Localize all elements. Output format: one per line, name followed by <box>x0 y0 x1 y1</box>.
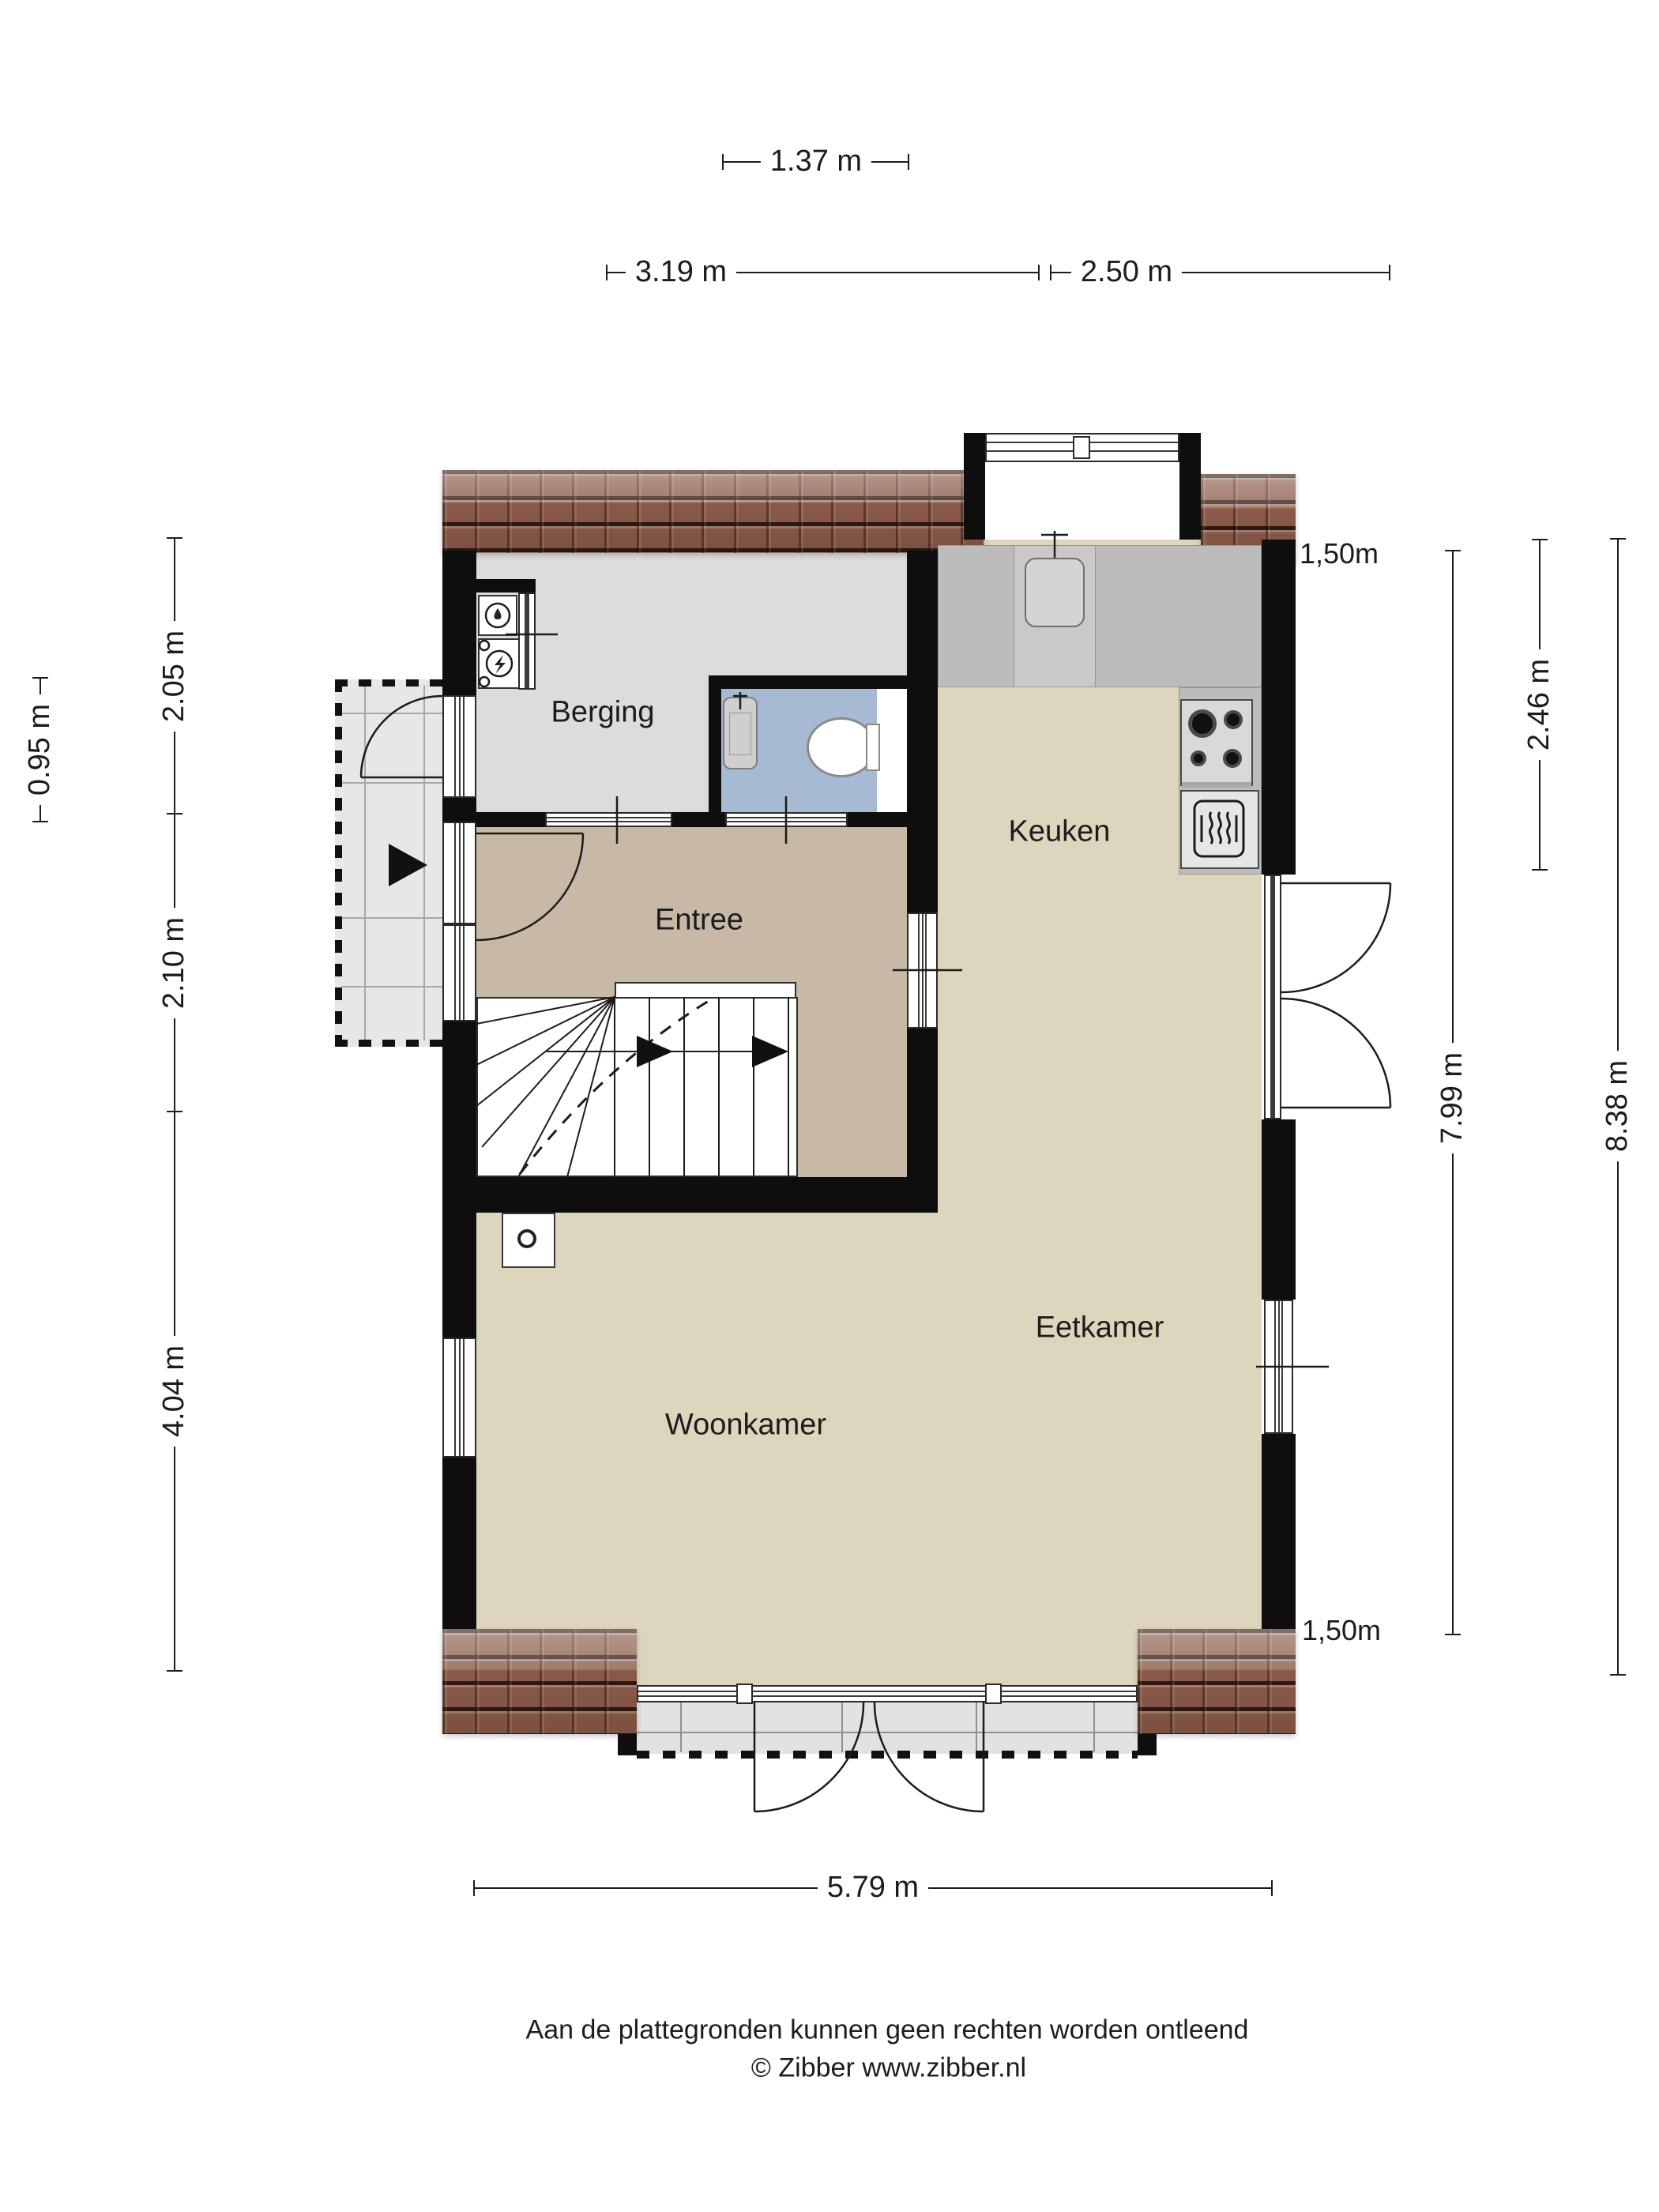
dim-label-right-inner: 7.99 m <box>1436 1043 1469 1153</box>
dim-label-left-bottom: 4.04 m <box>158 1336 191 1446</box>
oven <box>1180 790 1259 869</box>
front-door-sidelight <box>442 924 476 1021</box>
electricity-meter <box>478 638 522 689</box>
dim-tick <box>167 1670 182 1672</box>
porch-joint <box>341 986 442 987</box>
dim-tick <box>167 1111 182 1112</box>
dim-tick <box>167 537 182 539</box>
dim-tick <box>1050 265 1051 280</box>
wall-left <box>442 551 476 695</box>
french-door-arc <box>1281 999 1390 1108</box>
dim-label-left-middle: 2.10 m <box>158 908 191 1018</box>
dim-tick <box>722 154 724 170</box>
stove <box>1180 699 1253 786</box>
porch-joint <box>341 713 442 714</box>
room-label-keuken: Keuken <box>1009 815 1111 849</box>
roof-strip-bottom-right <box>1138 1629 1296 1734</box>
room-label-woonkamer: Woonkamer <box>665 1409 826 1443</box>
porch-dashed-border-left <box>335 679 342 1047</box>
dim-tick <box>1532 539 1548 540</box>
toilet-door <box>725 812 848 827</box>
dim-tick <box>1271 1880 1273 1896</box>
bay-post-right <box>1138 1734 1157 1755</box>
dormer-pillar-right <box>1179 433 1201 540</box>
bottom-front-mullion-left <box>736 1683 753 1704</box>
french-door-arc <box>1281 883 1390 992</box>
toilet-duct <box>877 689 907 812</box>
footer-disclaimer: Aan de plattegronden kunnen geen rechten… <box>526 2015 1249 2046</box>
stove-burner <box>1224 710 1243 729</box>
room-label-entree: Entree <box>655 904 743 938</box>
dim-tick <box>32 821 48 822</box>
stove-burner <box>1223 749 1242 768</box>
ceiling-height-label-bottom: 1,50m <box>1302 1614 1381 1647</box>
staircase-body <box>476 997 798 1177</box>
toilet-sink-basin <box>729 713 751 755</box>
floorplan-canvas: Berging Entree Keuken Eetkamer Woonkamer… <box>0 0 1659 2212</box>
footer-copyright: © Zibber www.zibber.nl <box>751 2053 1026 2084</box>
meter-cupboard-wall <box>476 579 536 592</box>
dim-label-bottom-width: 5.79 m <box>818 1872 928 1905</box>
dim-tick <box>606 265 608 280</box>
wall-toilet-left <box>709 689 721 812</box>
berging-exterior-door <box>442 695 476 798</box>
terrace-joint <box>637 1732 1138 1733</box>
staircase-landing <box>615 982 796 999</box>
dim-label-top-width: 1.37 m <box>761 145 871 179</box>
kitchen-sink <box>1025 558 1085 627</box>
bay-post-left <box>618 1734 637 1755</box>
dim-tick <box>1038 265 1040 280</box>
wall-berging-entree <box>476 812 545 827</box>
dormer-window-mullion <box>1073 436 1090 459</box>
dim-tick <box>1389 265 1390 280</box>
terrace-joint <box>976 1702 977 1752</box>
terrace-dotted-edge <box>637 1751 1138 1759</box>
water-meter <box>478 595 517 636</box>
kitchen-french-door-frame <box>1264 875 1281 1119</box>
wall-right <box>1262 1119 1296 1300</box>
room-label-berging: Berging <box>551 696 655 730</box>
stove-handle <box>1182 782 1251 788</box>
wall-berging-keuken <box>907 551 938 912</box>
ceiling-height-label-top: 1,50m <box>1300 537 1379 570</box>
dim-tick <box>1445 1634 1461 1635</box>
dormer-pillar-left <box>964 433 985 540</box>
dim-tick <box>32 677 48 679</box>
front-door <box>442 822 476 924</box>
dim-tick <box>1610 1674 1626 1676</box>
berging-entree-passage <box>545 812 672 827</box>
wall-right <box>1262 540 1296 875</box>
dim-label-right-kitchen: 2.46 m <box>1523 649 1556 760</box>
wood-stove-flue <box>517 1229 536 1248</box>
dim-label-right-outer: 8.38 m <box>1601 1051 1635 1161</box>
dim-tick <box>1610 538 1626 540</box>
stove-burner <box>1188 709 1217 738</box>
room-label-eetkamer: Eetkamer <box>1036 1311 1164 1345</box>
wall-toilet-top <box>709 675 907 689</box>
terrace-paving <box>637 1702 1138 1754</box>
dim-tick <box>473 1880 475 1896</box>
wall-left <box>442 798 476 822</box>
woonkamer-window-left <box>442 1337 476 1458</box>
entree-interior-window <box>907 912 938 1029</box>
bottom-glazed-front <box>637 1685 1138 1702</box>
porch-joint <box>341 782 442 784</box>
toilet-tank <box>866 724 880 771</box>
dim-tick <box>908 154 909 170</box>
roof-strip-bottom-left <box>442 1629 637 1734</box>
dormer-bay-inside <box>985 462 1179 540</box>
wall-left <box>442 1458 476 1629</box>
roof-strip-top-left <box>442 470 984 553</box>
porch-dashed-border-bottom <box>335 1040 442 1047</box>
dim-label-left-top: 2.05 m <box>158 621 191 732</box>
dim-label-left-porch: 0.95 m <box>24 694 57 805</box>
porch-dashed-border-top <box>335 679 442 687</box>
dim-tick <box>1445 550 1461 551</box>
kitchen-counter-top <box>938 545 1262 687</box>
terrace-joint <box>680 1702 682 1752</box>
dim-tick <box>1532 869 1548 871</box>
eetkamer-window-right <box>1264 1300 1293 1434</box>
wall-berging-entree <box>672 812 725 827</box>
entry-porch-paving <box>335 679 442 1047</box>
dim-label-upper-left: 3.19 m <box>626 256 736 289</box>
dim-label-upper-right: 2.50 m <box>1071 256 1182 289</box>
terrace-joint <box>841 1702 843 1752</box>
meter-cupboard-door <box>518 592 536 690</box>
dim-tick <box>167 813 182 814</box>
bottom-front-mullion-right <box>985 1683 1002 1704</box>
terrace-joint <box>1093 1702 1095 1752</box>
porch-joint <box>341 917 442 919</box>
stove-burner <box>1191 750 1206 766</box>
wall-entree-woonkamer <box>442 1177 938 1213</box>
wall-right <box>1262 1434 1296 1629</box>
wall-berging-entree <box>848 812 907 827</box>
